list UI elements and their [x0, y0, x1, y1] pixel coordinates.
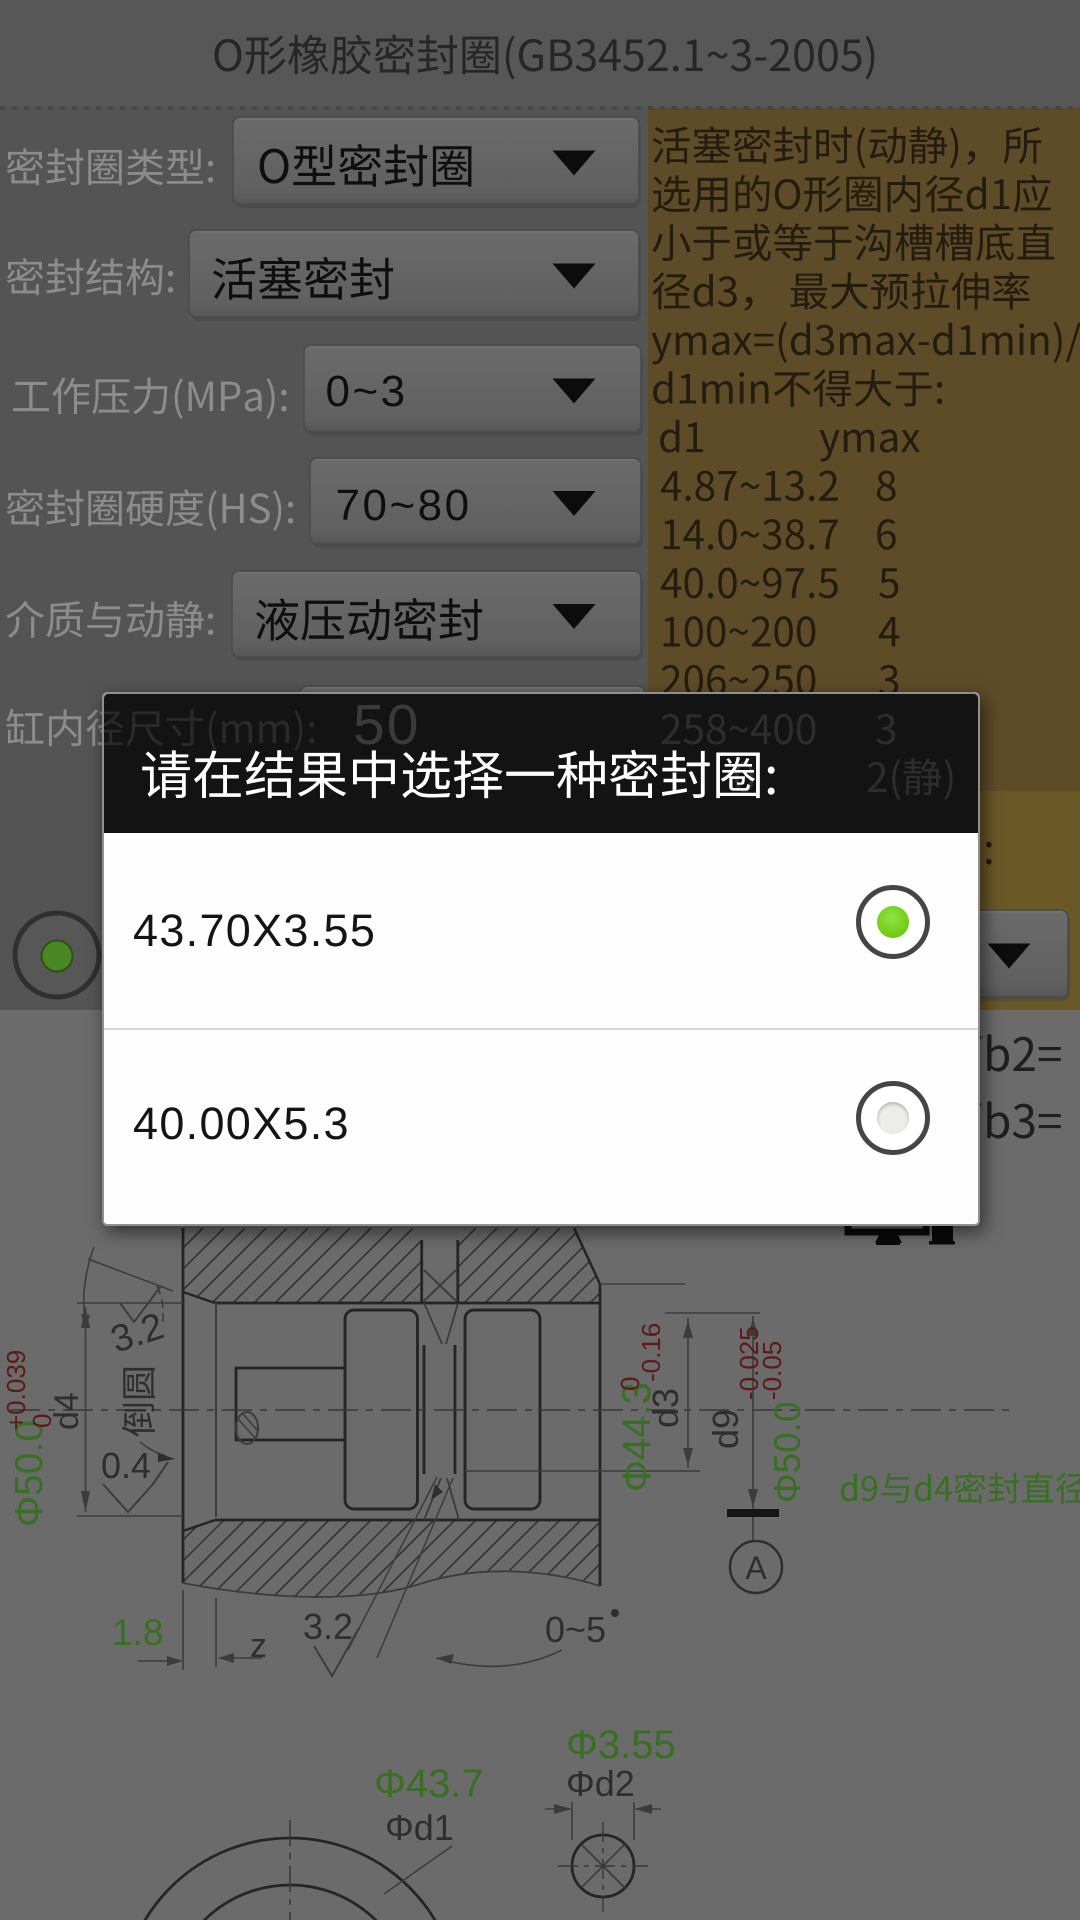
svg-text:1.8: 1.8 [112, 1612, 163, 1653]
svg-text:z: z [250, 1627, 267, 1665]
svg-text:Φd2: Φd2 [566, 1763, 635, 1804]
svg-text:-0.05: -0.05 [757, 1341, 787, 1400]
svg-text:Φ50.0: Φ50.0 [8, 1420, 51, 1527]
svg-text:3.2: 3.2 [303, 1606, 353, 1647]
svg-text:Φ50.0: Φ50.0 [767, 1401, 808, 1503]
svg-text:Φd1: Φd1 [385, 1807, 454, 1848]
svg-text:d3: d3 [645, 1388, 686, 1428]
svg-text:0~5: 0~5 [545, 1609, 606, 1650]
svg-text:A: A [745, 1550, 767, 1586]
svg-text:0.4: 0.4 [101, 1445, 151, 1486]
svg-text:50: 50 [353, 694, 420, 757]
svg-text:0: 0 [27, 1414, 57, 1428]
svg-text:0~3: 0~3 [326, 367, 408, 416]
svg-text:Φ43.7: Φ43.7 [374, 1762, 484, 1806]
svg-text:70~80: 70~80 [336, 481, 472, 530]
svg-text:Φ3.55: Φ3.55 [566, 1723, 676, 1767]
svg-text:d9: d9 [705, 1409, 746, 1449]
svg-text:-0.16: -0.16 [636, 1323, 666, 1382]
